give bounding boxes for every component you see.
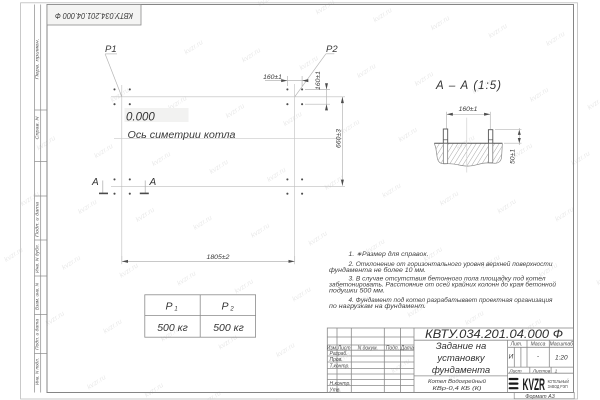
svg-text:Формат А3: Формат А3 bbox=[525, 394, 555, 400]
svg-text:Утв.: Утв. bbox=[330, 388, 341, 394]
svg-text:А – А (1:5): А – А (1:5) bbox=[435, 80, 502, 92]
svg-text:Справ. N: Справ. N bbox=[35, 116, 41, 140]
svg-text:Перв. примен.: Перв. примен. bbox=[35, 39, 41, 80]
svg-text:50±1: 50±1 bbox=[510, 149, 517, 164]
svg-text:Листов: Листов bbox=[532, 368, 551, 374]
svg-text:660±3: 660±3 bbox=[336, 129, 343, 148]
svg-text:Н.контр.: Н.контр. bbox=[330, 381, 351, 387]
svg-text:Котел Водогрейный: Котел Водогрейный bbox=[428, 378, 487, 385]
svg-text:фундамента не более 10 мм.: фундамента не более 10 мм. bbox=[329, 266, 426, 274]
svg-text:500 кг: 500 кг bbox=[157, 322, 188, 334]
svg-text:1: 1 bbox=[555, 368, 558, 374]
svg-text:подушки 500 мм.: подушки 500 мм. bbox=[329, 287, 385, 295]
svg-text:0.000: 0.000 bbox=[126, 112, 155, 124]
svg-text:фундамента: фундамента bbox=[432, 365, 490, 376]
svg-text:Инв. N дубл.: Инв. N дубл. bbox=[35, 244, 41, 273]
svg-text:Т.контр.: Т.контр. bbox=[330, 364, 350, 370]
svg-text:КВр-0,4 КБ (К): КВр-0,4 КБ (К) bbox=[433, 386, 482, 392]
svg-text:Подп. и дата: Подп. и дата bbox=[35, 319, 41, 350]
svg-text:И: И bbox=[509, 354, 514, 361]
svg-text:установку: установку bbox=[436, 353, 486, 364]
svg-text:А: А bbox=[91, 177, 99, 188]
svg-text:Взам. инв. N: Взам. инв. N bbox=[35, 282, 41, 310]
svg-text:по нагрузкам на фундамент.: по нагрузкам на фундамент. bbox=[329, 302, 426, 310]
svg-text:Подп. и дата: Подп. и дата bbox=[35, 202, 41, 237]
svg-text:160±1: 160±1 bbox=[263, 74, 282, 81]
svg-text:Пров.: Пров. bbox=[330, 357, 343, 363]
svg-text:1:20: 1:20 bbox=[555, 355, 568, 362]
svg-text:А: А bbox=[149, 177, 157, 188]
svg-text:Подп.: Подп. bbox=[386, 345, 399, 351]
svg-text:Дата: Дата bbox=[400, 345, 414, 351]
svg-text:ЗАВОД РЭП: ЗАВОД РЭП bbox=[548, 384, 568, 389]
svg-text:P1: P1 bbox=[105, 44, 117, 55]
svg-text:160±1: 160±1 bbox=[459, 106, 478, 113]
svg-text:Лист: Лист bbox=[508, 368, 521, 374]
svg-text:1. ∗Размер для справок.: 1. ∗Размер для справок. bbox=[349, 250, 429, 258]
svg-text:P: P bbox=[165, 301, 172, 313]
svg-text:Масса: Масса bbox=[531, 342, 546, 348]
svg-text:1: 1 bbox=[174, 307, 177, 313]
svg-text:Инв. N подл.: Инв. N подл. bbox=[35, 358, 41, 385]
svg-text:КВТУ.034.201.04.000 Ф: КВТУ.034.201.04.000 Ф bbox=[54, 11, 133, 20]
svg-text:Задание на: Задание на bbox=[436, 341, 487, 352]
svg-text:P: P bbox=[221, 301, 228, 313]
svg-text:Масштаб: Масштаб bbox=[550, 342, 574, 348]
svg-text:KVZR: KVZR bbox=[523, 376, 546, 394]
svg-text:2: 2 bbox=[229, 307, 234, 313]
svg-text:N докум.: N докум. bbox=[358, 345, 378, 351]
svg-text:P2: P2 bbox=[326, 44, 338, 55]
svg-text:Ось симетрии котла: Ось симетрии котла bbox=[128, 130, 237, 141]
svg-text:КВТУ.034.201.04.000 Ф: КВТУ.034.201.04.000 Ф bbox=[425, 329, 563, 341]
svg-text:500 кг: 500 кг bbox=[213, 322, 244, 334]
svg-text:1805±2: 1805±2 bbox=[207, 254, 230, 261]
svg-text:Лит.: Лит. bbox=[510, 342, 523, 348]
svg-text:160±1: 160±1 bbox=[315, 71, 322, 90]
